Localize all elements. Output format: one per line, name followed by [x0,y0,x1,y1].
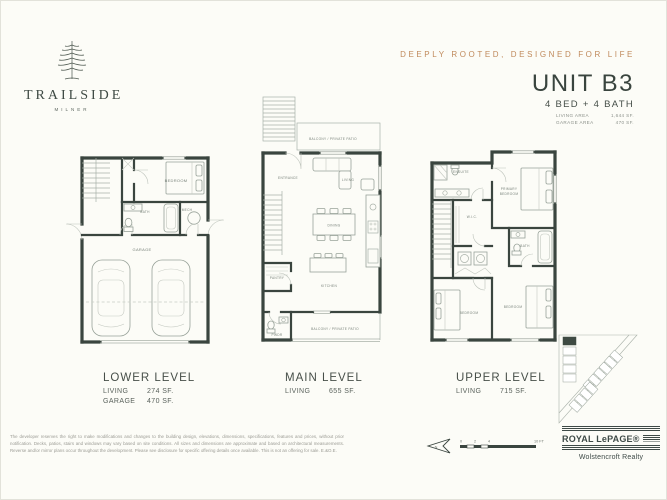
lower-level-caption: LOWER LEVEL LIVING 274 SF. GARAGE 470 SF… [103,372,195,407]
laundry-closet [455,252,491,274]
room-label-bedroom-left: BEDROOM [460,311,479,315]
lot [563,356,576,364]
walk-in-closet [453,206,492,246]
logo-stripes [643,435,660,443]
brand-subname: MILNER [24,107,120,112]
north-label: N [435,446,438,450]
room-label-kitchen: KITCHEN [321,284,337,288]
scale-bar: 0 2 4 10 FT [458,437,548,453]
stat-row: GARAGE 470 SF. [103,398,195,405]
scale-tick: 4 [488,440,490,444]
garage-area-label: GARAGE AREA [556,120,594,125]
area-summary: LIVING AREA 1,644 SF. GARAGE AREA 470 SF… [556,113,634,127]
brokerage-office: Wolstencroft Realty [562,454,660,461]
logo-stripes [562,426,660,432]
stat-label: LIVING [103,388,147,395]
kitchen-island-icon [310,254,346,273]
room-label-primary-2: BEDROOM [500,192,519,196]
window [511,151,535,153]
bed-icon [434,290,460,330]
brokerage-name: ROYAL LePAGE® [562,434,640,444]
room-label-bedroom: BEDROOM [165,178,188,183]
lot [563,347,576,355]
bed-bath-count: 4 BED + 4 BATH [545,99,634,110]
garage-door [100,341,190,343]
scale-end-label: 10 FT [534,440,545,444]
toilet-icon [124,218,133,231]
room-label-mech: MECH [182,208,193,212]
upper-level-floorplan: ENSUITE PRIMARY BEDROOM W.I.C. BATH BEDR… [425,138,570,360]
lower-level-floorplan: BEDROOM BATH MECH GARAGE [62,140,228,362]
living-area-label: LIVING AREA [556,113,589,118]
door-arc [186,223,198,235]
car-icon [92,260,130,336]
window [162,157,186,159]
tagline: DEEPLY ROOTED, DESIGNED FOR LIFE [400,50,635,59]
north-arrow-icon: N [424,437,454,455]
stairs [82,158,110,202]
wall [432,152,555,163]
stat-value: 470 SF. [147,398,174,405]
garage-area-value: 470 SF. [616,120,634,125]
lot [563,374,576,382]
stat-row: LIVING 655 SF. [285,388,363,395]
door-arc [134,170,148,184]
scale-tick: 0 [460,440,462,444]
lower-level-title: LOWER LEVEL [103,372,195,384]
living-area-value: 1,644 SF. [611,113,634,118]
kitchen-counter [366,195,380,267]
disclaimer-text: The developer reserves the right to make… [10,434,344,454]
room-label-balcony-bottom: BALCONY / PRIVATE PATIO [311,327,359,331]
highlighted-lot [563,337,576,345]
bed-icon [526,286,553,328]
room-label-ensuite: ENSUITE [453,170,469,174]
pine-tree-icon [50,38,94,84]
exterior-stairs [263,97,295,141]
brand-name: TRAILSIDE [24,88,120,104]
stat-value: 715 SF. [500,388,527,395]
stat-value: 274 SF. [147,388,174,395]
bathtub-icon [164,204,178,232]
stairs [432,200,451,268]
room-label-dining: DINING [328,224,341,228]
window [319,152,347,154]
room-label-garage: GARAGE [133,247,152,252]
window [554,174,556,204]
car-icon [152,260,190,336]
main-level-floorplan: BALCONY / PRIVATE PATIO [255,95,395,350]
stat-row: LIVING 274 SF. [103,388,195,395]
stat-label: LIVING [285,388,329,395]
room-label-pantry: PANTRY [270,276,285,280]
stat-row: LIVING 715 SF. [456,388,546,395]
closet-doors [122,158,134,170]
brand-logo: TRAILSIDE MILNER [24,38,120,112]
room-label-balcony-top: BALCONY / PRIVATE PATIO [309,137,357,141]
entry-door-arc [285,153,301,169]
upper-level-title: UPPER LEVEL [456,372,546,384]
brokerage-logo: ROYAL LePAGE® Wolstencroft Realty [562,426,660,461]
room-label-pwdr: PWDR [272,333,283,337]
garage-area-row: GARAGE AREA 470 SF. [556,120,634,125]
stat-value: 655 SF. [329,388,356,395]
room-label-wic: W.I.C. [467,215,477,219]
room-label-primary-1: PRIMARY [501,187,518,191]
sliding-door [313,311,331,313]
room-label-bedroom-right: BEDROOM [504,305,523,309]
armchair-icon [361,179,374,190]
side-door-arc [208,220,224,236]
interior-wall [122,158,134,202]
stat-label: GARAGE [103,398,147,405]
scale-tick: 2 [474,440,476,444]
living-area-row: LIVING AREA 1,644 SF. [556,113,634,118]
unit-title: UNIT B3 [532,70,634,98]
room-label-living: LIVING [342,178,354,182]
entry-door-arc [66,224,82,240]
stairs [263,191,282,255]
water-tank-icon [188,212,200,224]
sofa-icon [313,158,351,189]
lot [563,365,576,373]
room-label-bath: BATH [140,210,150,214]
bath-room [509,228,555,266]
logo-stripes [562,445,660,451]
room-label-entrance: ENTRANCE [278,176,298,180]
room-label-bath: BATH [520,244,530,248]
main-level-caption: MAIN LEVEL LIVING 655 SF. [285,372,363,398]
main-level-title: MAIN LEVEL [285,372,363,384]
door-arc [473,278,485,290]
site-key-plan [557,333,661,431]
upper-level-caption: UPPER LEVEL LIVING 715 SF. [456,372,546,398]
stat-label: LIVING [456,388,500,395]
floorplan-sheet: TRAILSIDE MILNER DEEPLY ROOTED, DESIGNED… [0,0,667,500]
